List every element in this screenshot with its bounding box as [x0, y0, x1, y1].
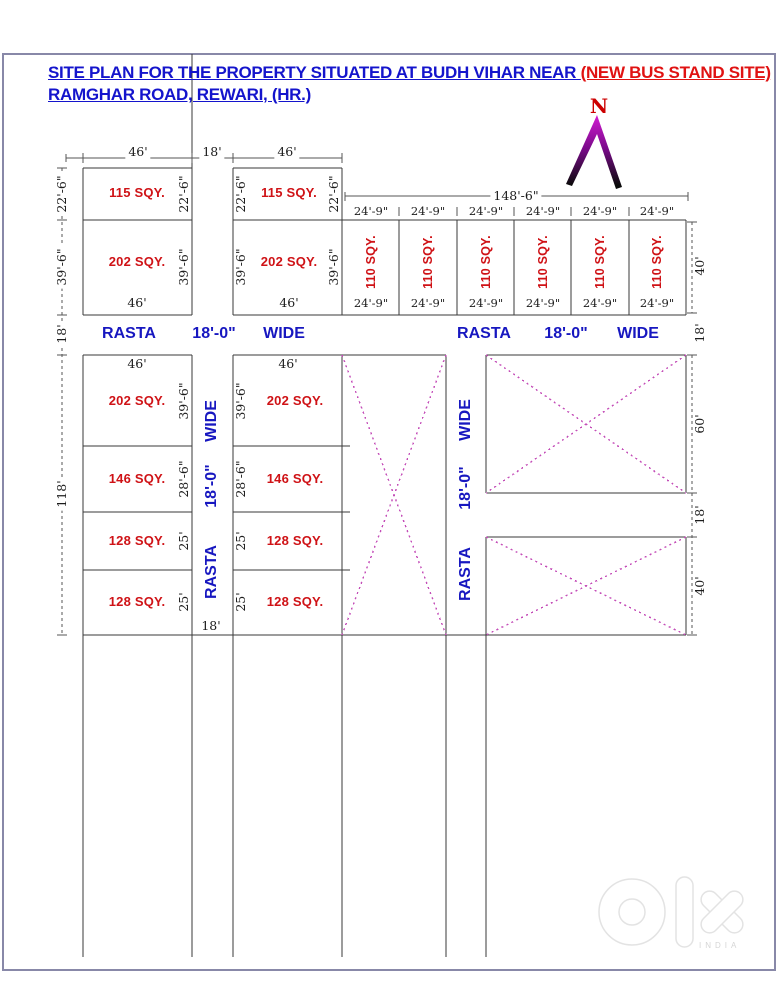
site-plan-page: SITE PLAN FOR THE PROPERTY SITUATED AT B… — [0, 0, 779, 999]
dim-inner-46-d: 46' — [278, 357, 297, 371]
dim-right-40: 40' — [693, 573, 707, 598]
dim-inner-39-6-c: 39'-6" — [327, 248, 341, 285]
plot-label-202-a: 202 SQY. — [109, 255, 166, 269]
dim-inner-25-b: 25' — [177, 592, 191, 611]
vroad-left-width: 18'-0" — [205, 464, 219, 507]
vroad-left-wide: WIDE — [205, 400, 219, 442]
dim-right-60: 60' — [693, 411, 707, 436]
dim-inner-25-c: 25' — [234, 531, 248, 550]
title-line1-blue: SITE PLAN FOR THE PROPERTY SITUATED AT B… — [48, 63, 581, 82]
north-arrow-icon — [556, 112, 640, 192]
olx-watermark-logo: INDIA — [596, 872, 752, 958]
plot-label-115-b: 115 SQY. — [261, 186, 317, 200]
plot-label-146-b: 146 SQY. — [267, 472, 324, 486]
dim-24-9-bot-5: 24'-9" — [583, 296, 617, 310]
plot-label-110-2: 110 SQY. — [421, 235, 435, 289]
olx-bar-icon — [676, 877, 693, 947]
plot-label-110-3: 110 SQY. — [479, 235, 493, 289]
plot-label-115-a: 115 SQY. — [109, 186, 165, 200]
dim-24-9-top-4: 24'-9" — [526, 204, 560, 218]
plot-label-128-a: 128 SQY. — [109, 534, 166, 548]
dim-inner-28-6-b: 28'-6" — [234, 460, 248, 497]
dim-24-9-bot-2: 24'-9" — [411, 296, 445, 310]
dim-right-18-cross-road: 18' — [693, 502, 707, 527]
road-wide-left: WIDE — [263, 327, 305, 341]
olx-india-text: INDIA — [699, 941, 740, 950]
dim-inner-28-6-a: 28'-6" — [177, 460, 191, 497]
plot-label-110-6: 110 SQY. — [650, 235, 664, 289]
dim-24-9-top-6: 24'-9" — [640, 204, 674, 218]
dim-inner-22-6-a: 22'-6" — [177, 175, 191, 212]
plot-label-110-1: 110 SQY. — [364, 235, 378, 289]
dim-inner-46-b: 46' — [279, 296, 298, 310]
dim-top-18-road: 18' — [199, 145, 224, 159]
plot-label-110-5: 110 SQY. — [593, 235, 607, 289]
plot-label-202-d: 202 SQY. — [267, 394, 324, 408]
plot-label-110-4: 110 SQY. — [536, 235, 550, 289]
road-width-right: 18'-0" — [544, 327, 587, 341]
dim-inner-25-a: 25' — [177, 531, 191, 550]
dim-left-22-6: 22'-6" — [55, 172, 69, 215]
plot-label-128-c: 128 SQY. — [267, 534, 324, 548]
vroad-right-rasta: RASTA — [459, 547, 473, 601]
dim-inner-46-a: 46' — [127, 296, 146, 310]
dim-top-46-right: 46' — [274, 145, 299, 159]
dim-inner-39-6-d: 39'-6" — [177, 382, 191, 419]
dim-inner-39-6-e: 39'-6" — [234, 382, 248, 419]
dim-inner-25-d: 25' — [234, 592, 248, 611]
dim-148-6-total: 148'-6" — [490, 189, 541, 203]
dim-inner-22-6-b: 22'-6" — [234, 175, 248, 212]
dim-right-40-strip: 40' — [693, 253, 707, 278]
title-line2: RAMGHAR ROAD, REWARI, (HR.) — [48, 85, 311, 104]
dim-inner-46-c: 46' — [127, 357, 146, 371]
road-wide-right: WIDE — [617, 327, 659, 341]
dim-left-118: 118' — [55, 477, 69, 510]
road-rasta-right: RASTA — [457, 327, 511, 341]
dim-24-9-top-2: 24'-9" — [411, 204, 445, 218]
dim-24-9-top-3: 24'-9" — [469, 204, 503, 218]
plan-line-drawing — [0, 0, 779, 999]
dim-24-9-top-1: 24'-9" — [354, 204, 388, 218]
plot-label-146-a: 146 SQY. — [109, 472, 166, 486]
title-line1-highlight: (NEW BUS STAND SITE) — [581, 63, 771, 82]
dim-24-9-bot-4: 24'-9" — [526, 296, 560, 310]
dim-left-39-6: 39'-6" — [55, 245, 69, 288]
dim-inner-22-6-c: 22'-6" — [327, 175, 341, 212]
plot-label-128-b: 128 SQY. — [109, 595, 166, 609]
dim-vroad-left-18: 18' — [201, 619, 220, 633]
vroad-right-width: 18'-0" — [459, 466, 473, 509]
vroad-left-rasta: RASTA — [205, 545, 219, 599]
vroad-right-wide: WIDE — [459, 399, 473, 441]
dim-24-9-top-5: 24'-9" — [583, 204, 617, 218]
plot-label-202-c: 202 SQY. — [109, 394, 166, 408]
dim-left-18-rasta: 18' — [55, 321, 69, 346]
road-rasta-left: RASTA — [102, 327, 156, 341]
plot-label-128-d: 128 SQY. — [267, 595, 324, 609]
dim-24-9-bot-6: 24'-9" — [640, 296, 674, 310]
crossed-out-plot-marks — [342, 355, 686, 635]
dim-top-46-left: 46' — [125, 145, 150, 159]
road-width-left: 18'-0" — [192, 327, 235, 341]
dim-inner-39-6-a: 39'-6" — [177, 248, 191, 285]
page-title: SITE PLAN FOR THE PROPERTY SITUATED AT B… — [48, 62, 774, 106]
dim-right-18-rasta: 18' — [693, 320, 707, 345]
plot-label-202-b: 202 SQY. — [261, 255, 318, 269]
dim-inner-39-6-b: 39'-6" — [234, 248, 248, 285]
dim-24-9-bot-3: 24'-9" — [469, 296, 503, 310]
dim-24-9-bot-1: 24'-9" — [354, 296, 388, 310]
